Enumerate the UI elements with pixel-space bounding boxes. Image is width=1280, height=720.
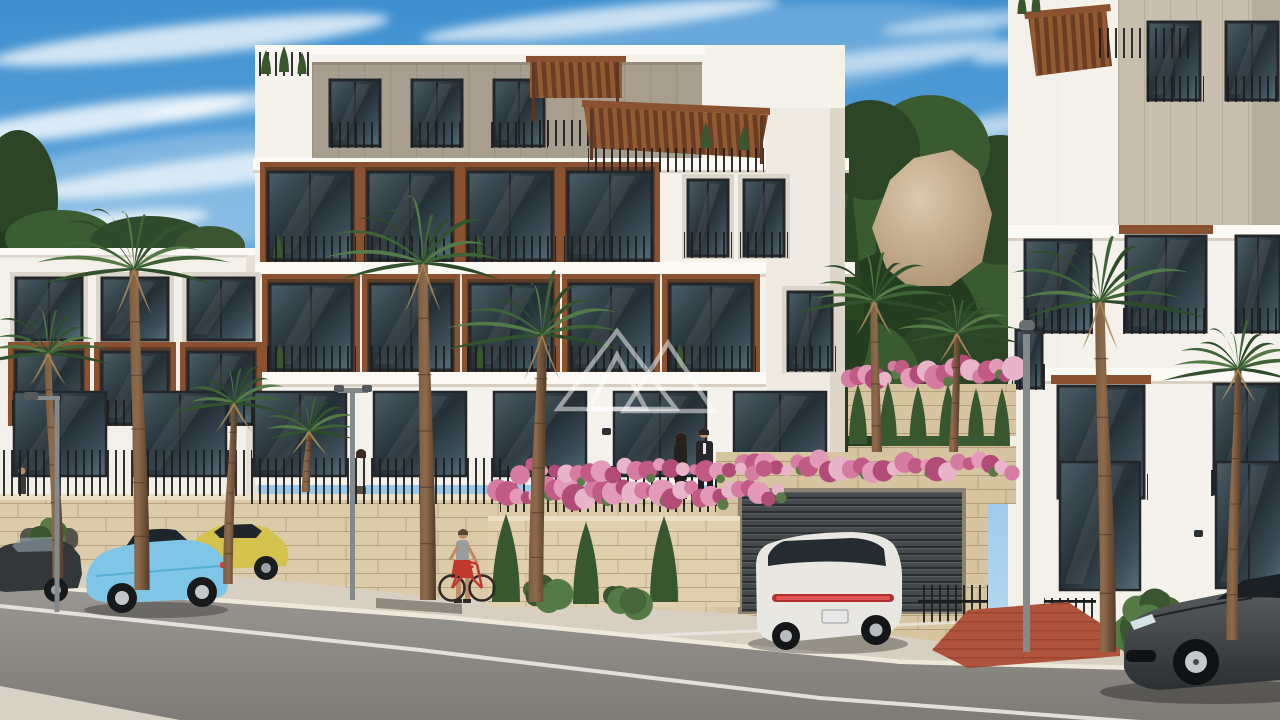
glass-door bbox=[1216, 462, 1280, 588]
white-suv bbox=[748, 532, 908, 654]
balcony-railing bbox=[1144, 76, 1204, 102]
window bbox=[262, 274, 360, 372]
balcony-railing bbox=[366, 346, 456, 372]
architectural-render: Sunny 3D architectural rendering of a mo… bbox=[0, 0, 1280, 720]
window bbox=[408, 80, 466, 148]
wall-sconce bbox=[1194, 530, 1203, 537]
balcony-railing bbox=[326, 122, 384, 148]
balcony-railing bbox=[266, 346, 356, 372]
flower-cluster bbox=[722, 463, 737, 478]
flower-cluster bbox=[735, 463, 746, 474]
balcony-railing bbox=[684, 232, 732, 258]
balcony-railing bbox=[784, 346, 836, 372]
window bbox=[738, 174, 790, 259]
window bbox=[682, 174, 734, 259]
balcony-railing bbox=[740, 232, 788, 258]
window bbox=[562, 274, 660, 372]
window bbox=[326, 80, 384, 148]
window bbox=[10, 272, 88, 343]
window bbox=[260, 162, 360, 262]
cypress-tree bbox=[1032, 0, 1041, 12]
window bbox=[782, 286, 838, 373]
window bbox=[560, 162, 660, 262]
roof-railing bbox=[588, 148, 764, 172]
flower-cluster bbox=[781, 465, 792, 476]
flower-cluster bbox=[761, 492, 775, 506]
balcony-railing bbox=[264, 236, 356, 262]
balcony-railing bbox=[1122, 308, 1210, 334]
balcony-railing bbox=[1232, 308, 1280, 334]
window bbox=[362, 274, 460, 372]
scene: Sunny 3D architectural rendering of a mo… bbox=[0, 0, 1280, 720]
flower-cluster bbox=[756, 460, 772, 476]
flower-cluster bbox=[676, 462, 690, 476]
wall-sconce bbox=[602, 428, 611, 435]
window bbox=[182, 272, 260, 343]
cypress-tree bbox=[1018, 0, 1027, 14]
wood-lintel bbox=[1119, 225, 1213, 234]
flower-cluster bbox=[1004, 465, 1019, 480]
window bbox=[1232, 236, 1280, 334]
window bbox=[1222, 22, 1280, 102]
window bbox=[460, 162, 560, 262]
roof-railing bbox=[1095, 28, 1195, 58]
balcony-railing bbox=[1222, 76, 1280, 102]
balcony-railing bbox=[564, 236, 656, 262]
flower-cluster bbox=[1002, 356, 1026, 380]
balcony-railing bbox=[464, 236, 556, 262]
balcony-railing bbox=[408, 122, 466, 148]
